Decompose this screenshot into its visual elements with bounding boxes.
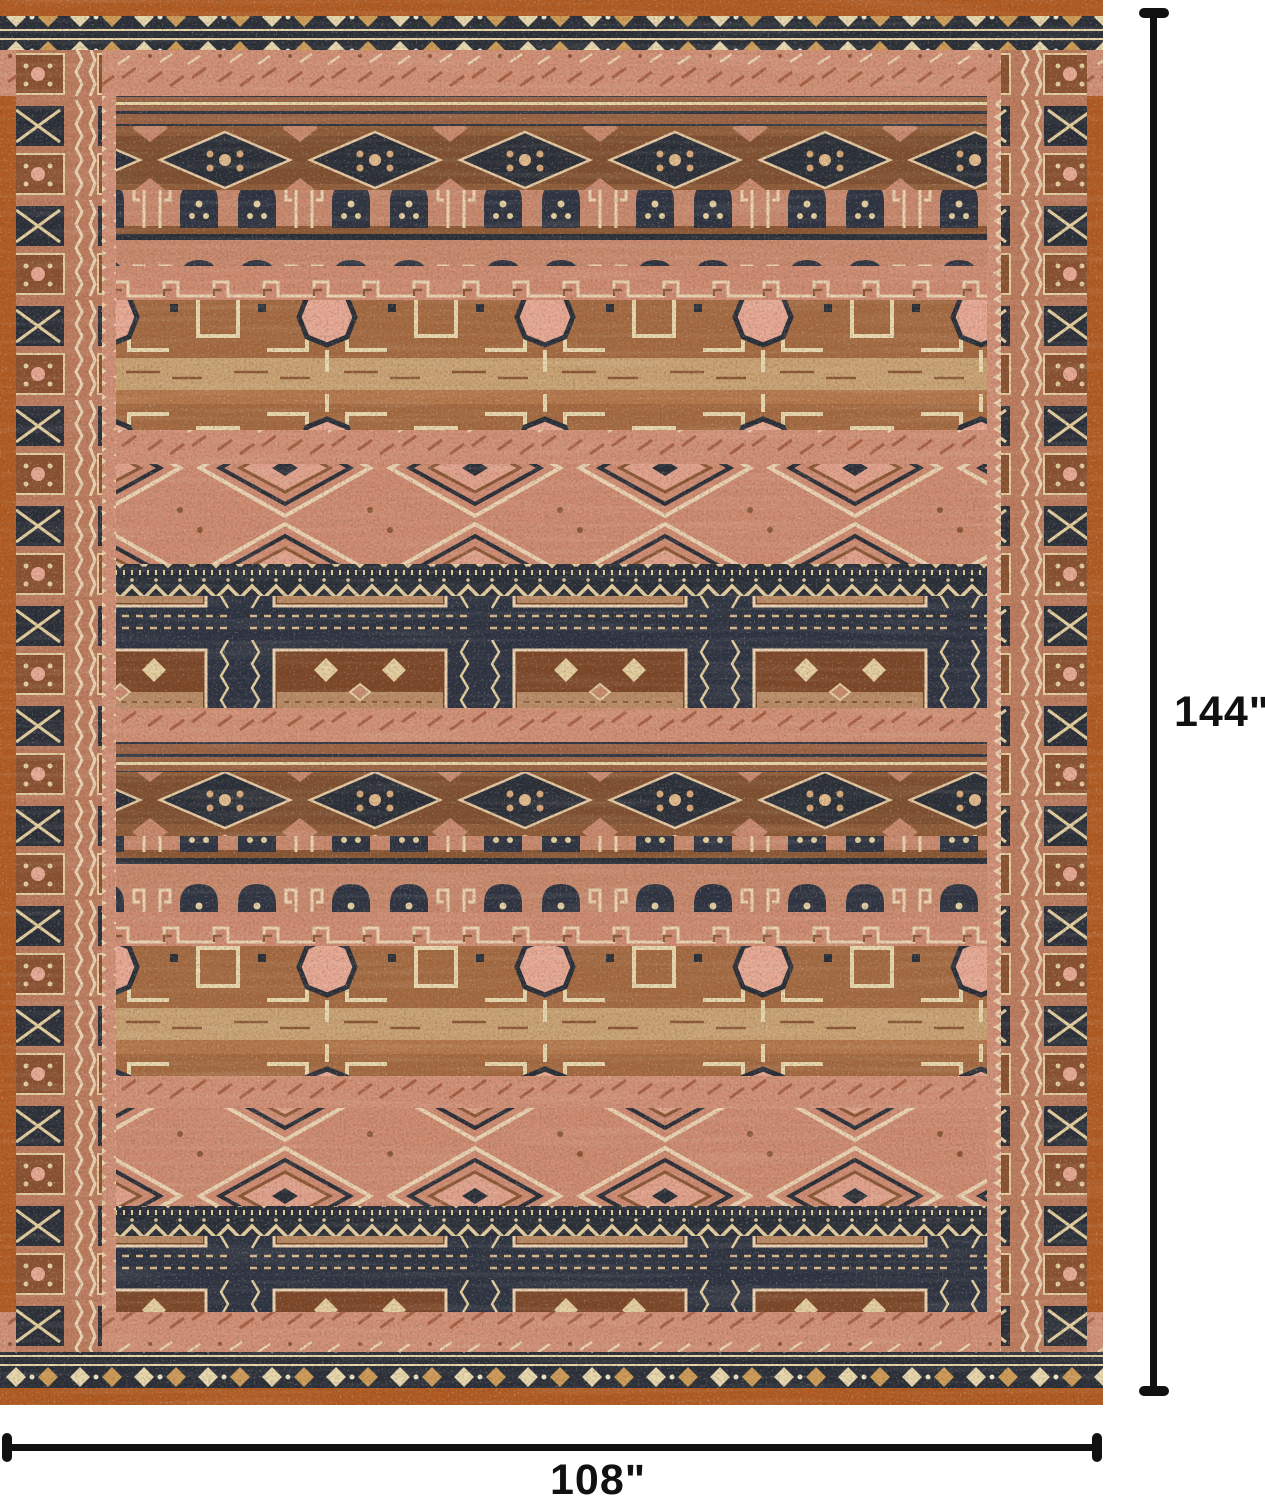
width-dimension-left-cap <box>2 1433 12 1462</box>
width-dimension-label: 108" <box>550 1459 646 1500</box>
height-dimension-bottom-cap <box>1139 1386 1169 1396</box>
height-dimension-label: 144" <box>1174 691 1265 734</box>
rug-pattern-graphic <box>0 0 1103 1405</box>
height-dimension-line <box>1150 12 1157 1390</box>
product-image-canvas: 144" 108" <box>0 0 1265 1500</box>
height-dimension-top-cap <box>1139 8 1169 18</box>
width-dimension-line <box>6 1444 1098 1451</box>
width-dimension-right-cap <box>1092 1433 1102 1462</box>
rug-photo <box>0 0 1103 1405</box>
